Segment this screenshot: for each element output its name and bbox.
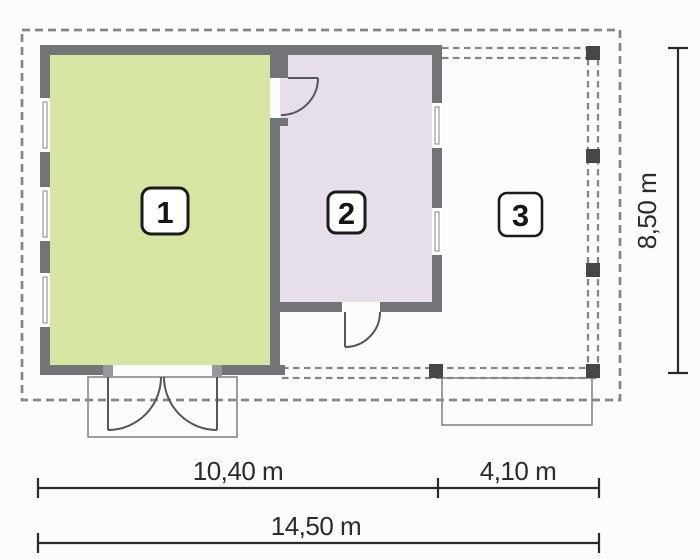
- post-east-lower: [586, 263, 600, 277]
- entrance-jamb-left: [103, 365, 113, 378]
- wall-east-seg1: [432, 45, 442, 103]
- wall-east-seg3: [432, 255, 442, 312]
- post-southeast: [586, 364, 600, 378]
- dim-width-right: 4,10 m: [480, 456, 557, 486]
- dim-width-left: 10,40 m: [193, 456, 283, 486]
- window-west-1-glazing: [43, 102, 47, 148]
- wall-interior-top-jamb: [270, 55, 288, 78]
- wall-west-seg3: [40, 241, 50, 273]
- window-west-2-glazing: [43, 191, 47, 237]
- wall-east-seg2: [432, 148, 442, 208]
- room-3-label: 3: [512, 198, 529, 233]
- dim-width-total: 14,50 m: [271, 511, 361, 541]
- room-1-label: 1: [156, 195, 173, 230]
- dim-height-right: 8,50 m: [632, 173, 662, 250]
- window-east-1-glazing: [435, 107, 439, 144]
- floor-plan-drawing: 1 2 3 10,40 m 4,10 m 14,50 m 8,50 m: [0, 0, 700, 559]
- post-south-inner: [429, 364, 443, 378]
- wall-west-seg1: [40, 55, 50, 98]
- post-northeast: [586, 46, 600, 60]
- wall-room2-south-left: [280, 302, 342, 312]
- window-east-2-glazing: [435, 212, 439, 251]
- wall-interior-main: [270, 126, 280, 375]
- floor-plan-canvas: 1 2 3 10,40 m 4,10 m 14,50 m 8,50 m: [0, 0, 700, 559]
- window-west-3-glazing: [43, 277, 47, 323]
- entrance-jamb-right: [212, 365, 222, 378]
- room-2-label: 2: [338, 196, 355, 231]
- room-2-floor: [280, 55, 432, 302]
- wall-south-left: [40, 365, 103, 375]
- wall-interior-lower-jamb: [270, 118, 288, 126]
- post-east-upper: [586, 149, 600, 163]
- wall-west-seg2: [40, 152, 50, 187]
- wall-north: [40, 45, 442, 55]
